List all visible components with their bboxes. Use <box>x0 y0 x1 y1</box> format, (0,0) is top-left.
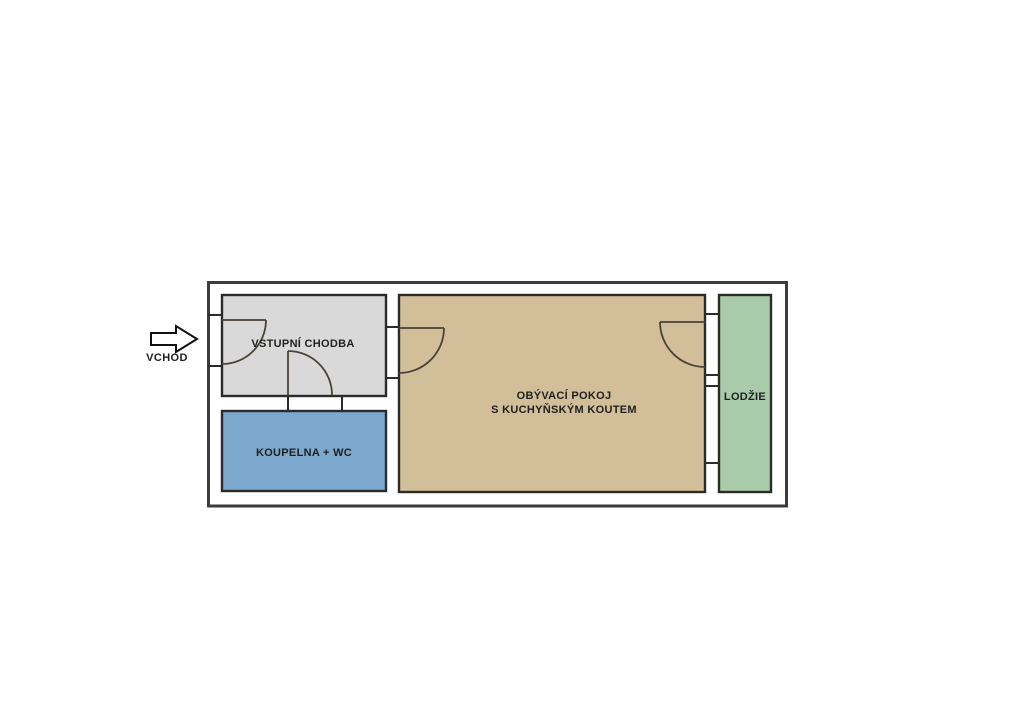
door-jambs-living-loggia <box>705 314 719 463</box>
room-loggia-label: LODŽIE <box>724 390 766 403</box>
door-jambs-hall-living <box>386 327 399 378</box>
room-hall-label: VSTUPNÍ CHODBA <box>251 337 354 350</box>
floor-plan-page: VCHOD VSTUPNÍ CHODBA KOUPELNA + WC OBÝVA… <box>0 0 1024 724</box>
room-living-label-line2: S KUCHYŇSKÝM KOUTEM <box>491 403 637 416</box>
floor-plan-svg: VCHOD VSTUPNÍ CHODBA KOUPELNA + WC OBÝVA… <box>0 0 1024 724</box>
room-bathroom-label: KOUPELNA + WC <box>256 447 352 459</box>
door-jambs-hall-bathroom <box>288 396 342 411</box>
door-jambs-entrance <box>208 315 222 366</box>
entrance-label: VCHOD <box>146 352 188 364</box>
entrance-arrow-icon <box>151 326 197 352</box>
room-living-label-line1: OBÝVACÍ POKOJ <box>517 389 612 402</box>
